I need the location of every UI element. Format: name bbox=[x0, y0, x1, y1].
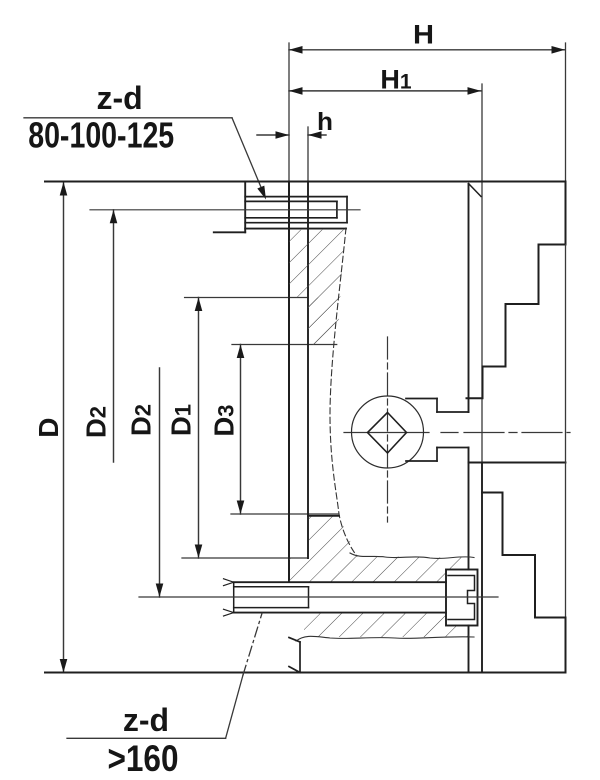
svg-text:80-100-125: 80-100-125 bbox=[28, 115, 174, 156]
svg-text:z-d: z-d bbox=[96, 80, 142, 116]
svg-text:H: H bbox=[413, 19, 434, 49]
svg-text:D2: D2 bbox=[80, 406, 111, 438]
svg-text:D1: D1 bbox=[166, 404, 197, 436]
svg-text:h: h bbox=[317, 108, 333, 136]
svg-text:D2: D2 bbox=[126, 404, 157, 436]
svg-text:D: D bbox=[33, 417, 64, 437]
svg-text:D3: D3 bbox=[209, 404, 240, 436]
svg-text:z-d: z-d bbox=[123, 702, 169, 738]
svg-text:>160: >160 bbox=[108, 738, 179, 779]
